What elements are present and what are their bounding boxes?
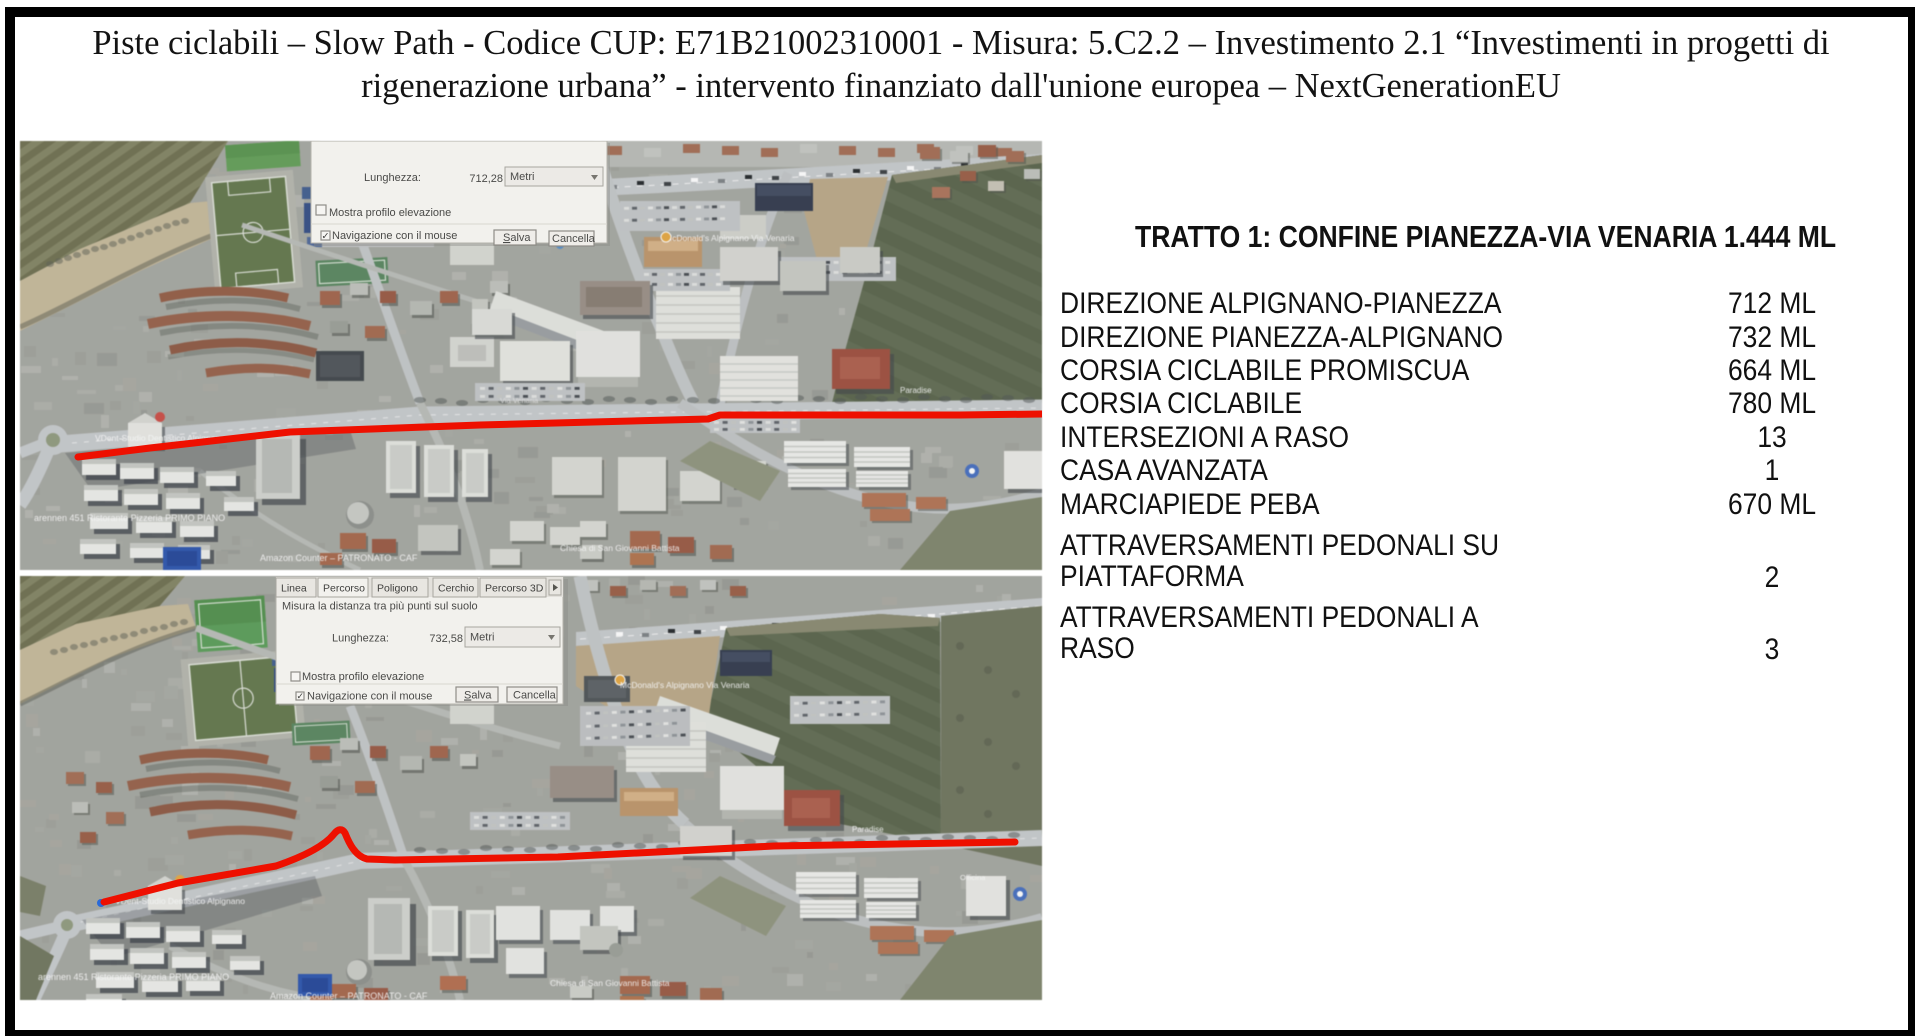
svg-text:Mostra profilo elevazione: Mostra profilo elevazione [329,207,451,219]
svg-text:Cancella: Cancella [552,233,596,245]
svg-text:✓: ✓ [322,231,330,242]
svg-text:Lunghezza:: Lunghezza: [364,172,421,184]
svg-text:Lunghezza:: Lunghezza: [332,633,389,645]
svg-text:Misura la distanza tra più pun: Misura la distanza tra più punti sul suo… [282,601,478,613]
svg-text:712,28: 712,28 [469,173,503,185]
svg-text:Cerchio: Cerchio [438,583,474,595]
svg-text:Percorso: Percorso [323,583,365,595]
svg-text:Cancella: Cancella [513,690,557,702]
svg-text:Poligono: Poligono [377,583,418,595]
svg-text:Linea: Linea [281,583,307,595]
svg-text:Salva: Salva [464,690,492,702]
svg-text:Mostra profilo elevazione: Mostra profilo elevazione [302,671,424,683]
svg-text:Metri: Metri [510,171,534,183]
svg-text:✓: ✓ [297,691,305,701]
svg-text:732,58: 732,58 [429,633,463,645]
svg-text:Navigazione con il mouse: Navigazione con il mouse [307,691,432,703]
svg-text:Percorso 3D: Percorso 3D [485,583,544,595]
svg-text:Salva: Salva [503,232,531,244]
svg-text:Metri: Metri [470,632,494,644]
svg-text:Navigazione con il mouse: Navigazione con il mouse [332,230,457,242]
